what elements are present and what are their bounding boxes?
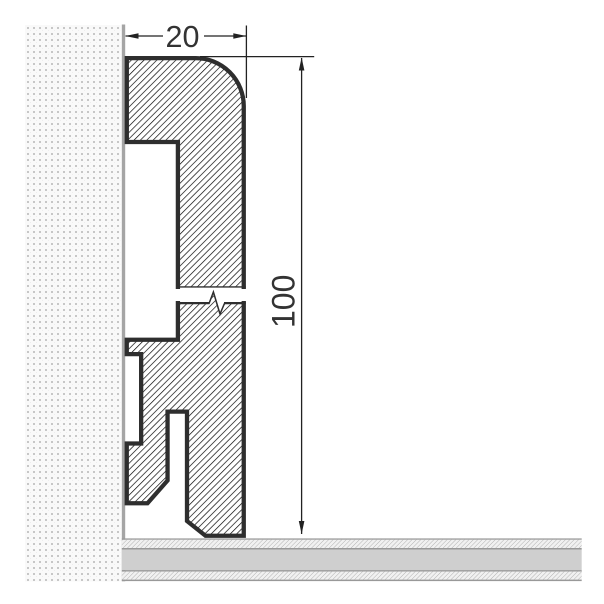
svg-text:100: 100 <box>266 275 302 328</box>
svg-text:20: 20 <box>166 20 200 54</box>
